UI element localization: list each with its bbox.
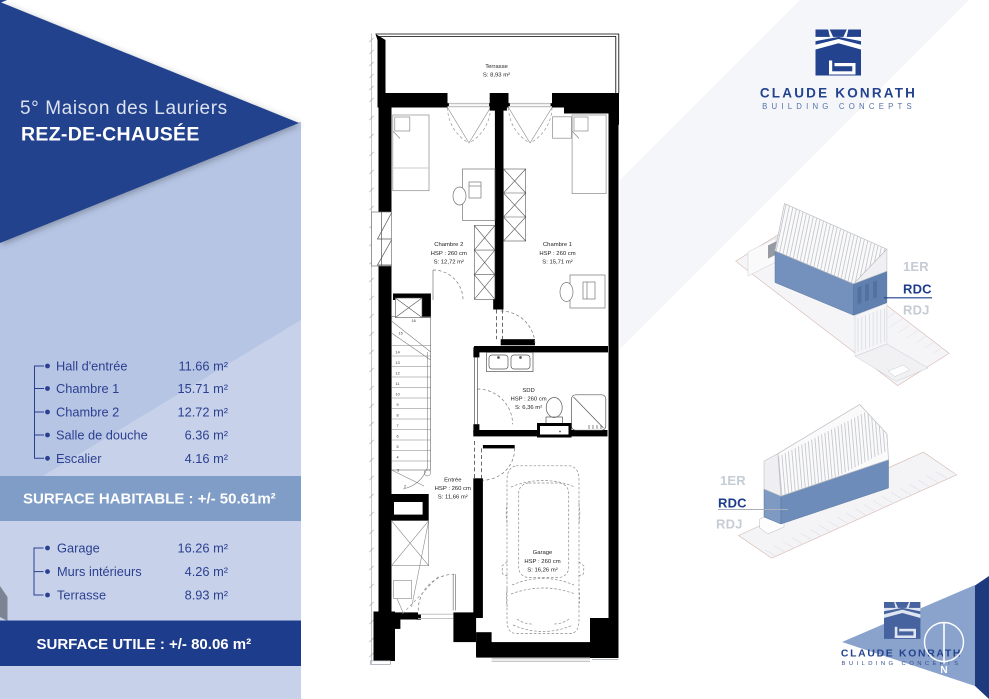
svg-text:CLAUDE KONRATH: CLAUDE KONRATH: [760, 86, 917, 101]
svg-text:HSP : 260 cm: HSP : 260 cm: [435, 486, 471, 492]
svg-text:RDC: RDC: [903, 282, 932, 297]
svg-text:3: 3: [397, 469, 399, 473]
svg-text:5: 5: [397, 445, 399, 449]
svg-text:Entrée: Entrée: [444, 478, 462, 484]
svg-text:5° Maison des Lauriers: 5° Maison des Lauriers: [20, 98, 228, 119]
svg-text:RDJ: RDJ: [716, 517, 743, 532]
svg-text:Chambre 2: Chambre 2: [56, 405, 119, 420]
svg-text:12: 12: [396, 372, 400, 376]
svg-text:HSP : 260 cm: HSP : 260 cm: [510, 397, 546, 403]
svg-text:8.93 m²: 8.93 m²: [185, 588, 229, 603]
svg-text:1ER: 1ER: [903, 259, 929, 274]
svg-text:Chambre 1: Chambre 1: [543, 242, 572, 248]
svg-text:RDC: RDC: [718, 496, 747, 511]
svg-text:BUILDING CONCEPTS: BUILDING CONCEPTS: [762, 102, 916, 111]
svg-text:16.26 m²: 16.26 m²: [177, 541, 228, 556]
svg-text:12.72 m²: 12.72 m²: [177, 405, 228, 420]
svg-text:13: 13: [396, 361, 400, 365]
svg-text:Hall d'entrée: Hall d'entrée: [56, 359, 127, 374]
svg-text:S: 8,93 m²: S: 8,93 m²: [483, 73, 510, 79]
svg-text:4: 4: [397, 456, 399, 460]
svg-text:SURFACE HABITABLE : +/- 50.61m: SURFACE HABITABLE : +/- 50.61m²: [23, 491, 276, 508]
svg-text:Terrasse: Terrasse: [57, 588, 106, 603]
svg-text:S: 16,26 m²: S: 16,26 m²: [527, 567, 557, 573]
svg-text:11.66 m²: 11.66 m²: [178, 359, 228, 374]
svg-text:N: N: [940, 665, 947, 676]
svg-text:S: 15,71 m²: S: 15,71 m²: [542, 259, 572, 265]
svg-text:1ER: 1ER: [720, 473, 746, 488]
svg-text:Chambre 2: Chambre 2: [434, 242, 463, 248]
svg-text:S: 11,66 m²: S: 11,66 m²: [438, 495, 468, 501]
svg-text:Escalier: Escalier: [56, 451, 102, 466]
svg-text:2: 2: [404, 485, 406, 489]
svg-text:9: 9: [397, 403, 399, 407]
svg-text:14: 14: [396, 351, 400, 355]
svg-text:16: 16: [412, 319, 416, 323]
svg-text:RDJ: RDJ: [903, 303, 930, 318]
svg-text:4.16 m²: 4.16 m²: [185, 451, 229, 466]
svg-text:6: 6: [397, 435, 399, 439]
svg-text:11: 11: [396, 382, 400, 386]
svg-text:7: 7: [397, 424, 399, 428]
svg-text:Murs intérieurs: Murs intérieurs: [57, 564, 142, 579]
svg-text:HSP : 260 cm: HSP : 260 cm: [524, 559, 560, 565]
svg-text:8: 8: [397, 414, 399, 418]
svg-text:S: 12,72 m²: S: 12,72 m²: [434, 259, 464, 265]
svg-text:Garage: Garage: [533, 550, 553, 556]
svg-text:10: 10: [396, 393, 400, 397]
svg-text:6.36 m²: 6.36 m²: [185, 428, 229, 443]
svg-text:REZ-DE-CHAUSÉE: REZ-DE-CHAUSÉE: [21, 123, 200, 146]
svg-text:SDD: SDD: [522, 388, 534, 394]
svg-text:15: 15: [399, 332, 403, 336]
svg-text:SURFACE UTILE : +/- 80.06 m²: SURFACE UTILE : +/- 80.06 m²: [37, 636, 252, 653]
svg-text:Garage: Garage: [57, 541, 100, 556]
svg-text:S: 6,36 m²: S: 6,36 m²: [515, 405, 542, 411]
svg-text:15.71 m²: 15.71 m²: [177, 381, 228, 396]
svg-text:4.26 m²: 4.26 m²: [185, 564, 229, 579]
svg-text:Salle de douche: Salle de douche: [56, 428, 148, 443]
svg-text:Terrasse: Terrasse: [485, 64, 508, 70]
svg-text:Chambre 1: Chambre 1: [56, 381, 119, 396]
svg-text:HSP : 260 cm: HSP : 260 cm: [431, 251, 467, 257]
svg-text:HSP : 260 cm: HSP : 260 cm: [539, 251, 575, 257]
